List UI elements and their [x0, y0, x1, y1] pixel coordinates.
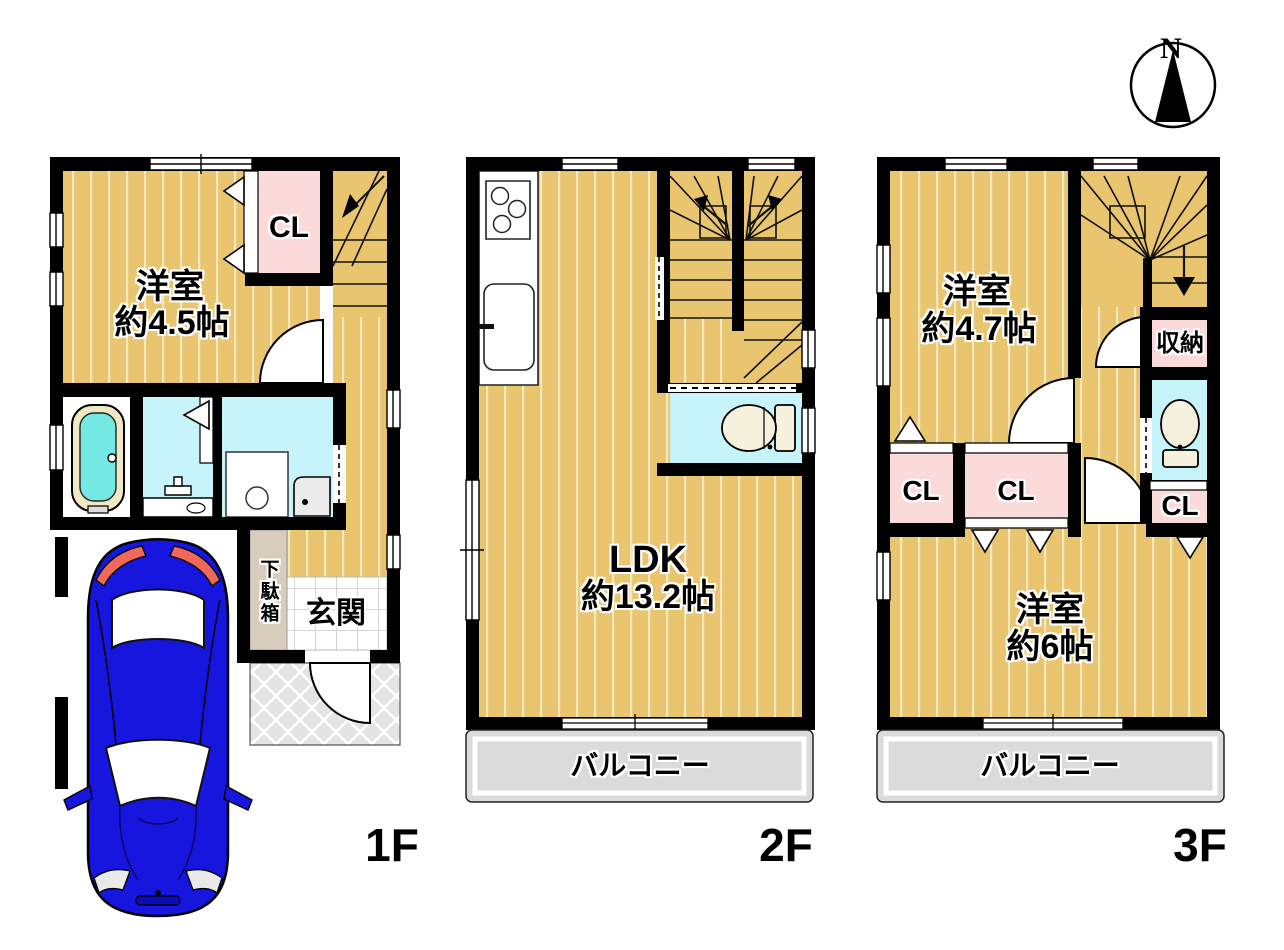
- f1-entrance-label: 玄関: [306, 599, 366, 629]
- f1-bathtub: [72, 405, 124, 513]
- f2-toilet: [722, 405, 795, 451]
- f2-ldk-name: LDK: [609, 541, 687, 579]
- f1-bedroom-name: 洋室: [136, 270, 204, 304]
- f3-bedroom-b-size: 約6帖: [1007, 630, 1094, 664]
- f3-closet-c-label: CL: [1161, 492, 1198, 520]
- floor-plan-page: 洋室 約4.5帖 CL 下駄箱 玄関 1F LDK 約13.2帖 バルコニー 2…: [0, 0, 1284, 950]
- floor-plan-drawing: [0, 0, 1284, 950]
- f3-balcony-label: バルコニー: [980, 752, 1119, 780]
- f3-closet-b-label: CL: [997, 477, 1034, 505]
- floor-1-plan: [50, 154, 400, 916]
- f1-shoebox-label: 下駄箱: [259, 559, 278, 625]
- car-top-view: [64, 539, 252, 916]
- grille: [136, 896, 180, 905]
- f2-floor-label: 2F: [759, 822, 813, 868]
- f1-bedroom-size: 約4.5帖: [114, 306, 229, 340]
- f2-kitchen: [479, 171, 538, 385]
- f3-toilet-door: [1140, 418, 1152, 473]
- windshield: [106, 740, 210, 806]
- compass-north-label: N: [1160, 34, 1182, 64]
- site-wall: [55, 537, 68, 597]
- f3-bedroom-a-name: 洋室: [943, 275, 1011, 309]
- f2-stair-door: [655, 257, 664, 320]
- f3-floor-label: 3F: [1173, 822, 1227, 868]
- f3-bedroom-a-size: 約4.7帖: [921, 312, 1036, 346]
- f1-closet-label: CL: [269, 213, 309, 243]
- floor-2-plan: [460, 157, 815, 802]
- rear-window: [112, 590, 204, 649]
- site-wall: [55, 697, 68, 789]
- f2-toilet-door: [668, 384, 796, 392]
- f1-floor-label: 1F: [365, 822, 419, 868]
- f3-toilet: [1161, 400, 1199, 467]
- f1-utility-door: [333, 445, 346, 503]
- f3-bedroom-b-name: 洋室: [1016, 593, 1084, 627]
- f3-closet-a-label: CL: [902, 477, 939, 505]
- f2-balcony-label: バルコニー: [570, 752, 709, 780]
- f2-ldk-size: 約13.2帖: [581, 580, 715, 614]
- f3-storage-label: 収納: [1156, 332, 1204, 356]
